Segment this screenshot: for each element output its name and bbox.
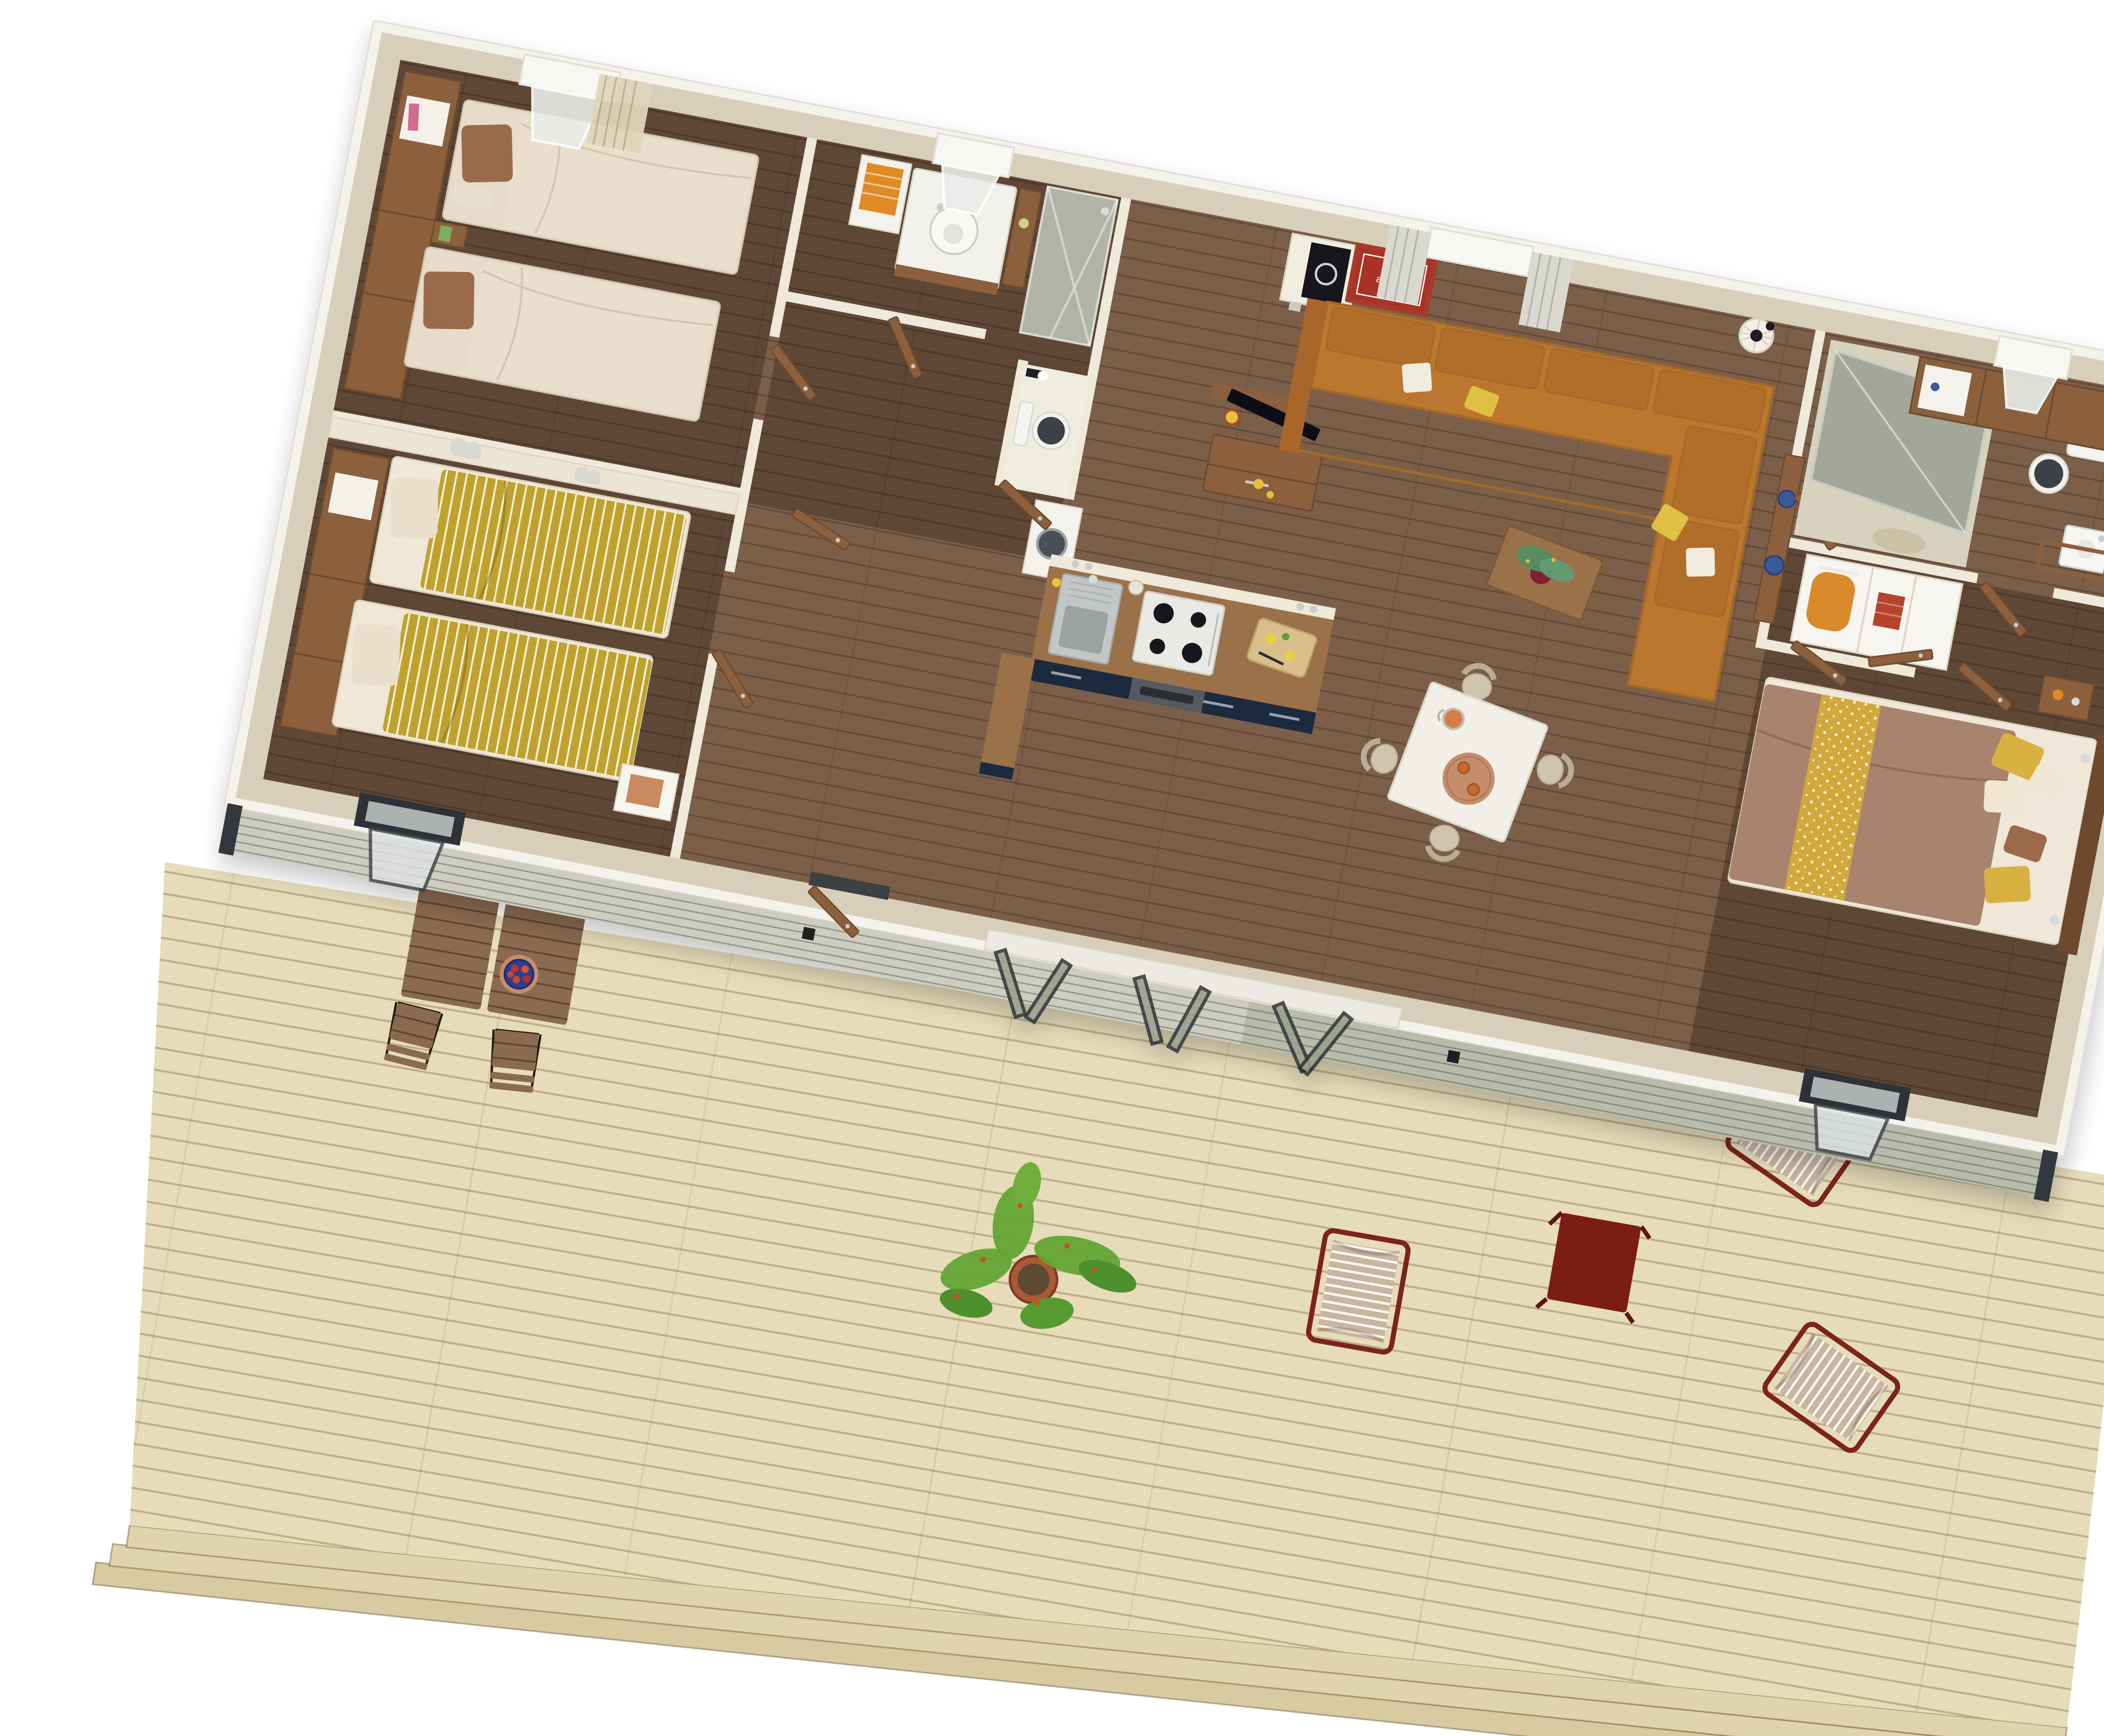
book bbox=[408, 104, 419, 131]
exterior-lamp bbox=[1447, 1050, 1461, 1064]
wardrobe-shelf bbox=[399, 96, 451, 147]
cushion bbox=[1686, 548, 1715, 577]
wardrobe-shelf bbox=[1918, 364, 1972, 416]
exterior-lamp bbox=[802, 927, 816, 941]
cushion bbox=[1402, 362, 1432, 393]
gas-hob bbox=[1132, 591, 1225, 675]
pillow bbox=[1983, 780, 2027, 814]
pillow bbox=[391, 477, 438, 539]
pillow bbox=[351, 624, 401, 686]
floorplan-render: amour. bbox=[0, 0, 2104, 1736]
wardrobe-shelf bbox=[328, 472, 378, 520]
pillow bbox=[423, 271, 475, 330]
pillow bbox=[461, 124, 513, 182]
floral-pillow bbox=[1984, 866, 2031, 904]
